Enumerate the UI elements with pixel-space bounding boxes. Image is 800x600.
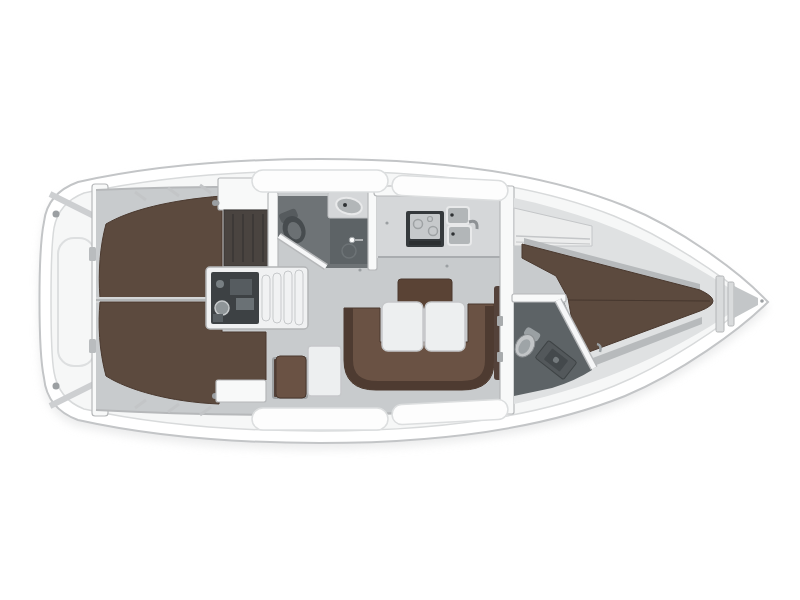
bow-partition-2: [728, 282, 734, 326]
bulkhead-hinge-lower: [89, 339, 96, 353]
floorplan-svg: [0, 0, 800, 600]
bulkhead-door-hinge-1: [497, 316, 503, 326]
aft-head-wall-left: [268, 192, 278, 270]
step-3: [284, 271, 292, 324]
bow-fitting: [760, 299, 764, 303]
aft-cabin-cabinet-starboard: [216, 380, 266, 402]
stove-knob-strip: [409, 241, 441, 245]
bulkhead-door-hinge-2: [497, 352, 503, 362]
chart-table: [308, 346, 341, 396]
floor-fitting-1: [385, 221, 388, 224]
sink-drain-2: [451, 232, 455, 236]
floor-fitting-2: [445, 264, 448, 267]
wet-locker: [224, 210, 268, 266]
companionway-engine-unit: [206, 267, 308, 329]
yacht-floorplan-image: [0, 0, 800, 600]
engine-part: [236, 298, 254, 310]
bulkhead-hinge-upper: [89, 247, 96, 261]
engine-mount: [213, 314, 223, 322]
floor-fitting-3: [358, 268, 361, 271]
nav-seat: [276, 356, 306, 398]
sink-drain-1: [450, 213, 454, 217]
shower-handle: [349, 237, 355, 243]
step-4: [295, 270, 303, 325]
coachroof-hatch-band-aft-starboard: [252, 408, 388, 430]
engine-cap: [216, 280, 224, 288]
cabinet-latch: [215, 201, 220, 206]
deck-fitting-starboard: [53, 383, 60, 390]
step-2: [273, 273, 281, 323]
galley-stove: [406, 211, 444, 247]
engine-pulley: [215, 301, 229, 315]
salon-table-leaf-right: [425, 302, 465, 351]
step-1: [262, 275, 270, 321]
coachroof-hatch-band-aft-port: [252, 170, 388, 192]
deck-fitting-port: [53, 211, 60, 218]
galley-sink-2: [448, 226, 471, 245]
engine-block: [230, 279, 252, 295]
aft-head-wall-right: [368, 190, 377, 270]
salon-table-leaf-left: [382, 302, 423, 351]
aft-head-sink-drain: [343, 203, 347, 207]
bow-partition-1: [716, 276, 724, 332]
